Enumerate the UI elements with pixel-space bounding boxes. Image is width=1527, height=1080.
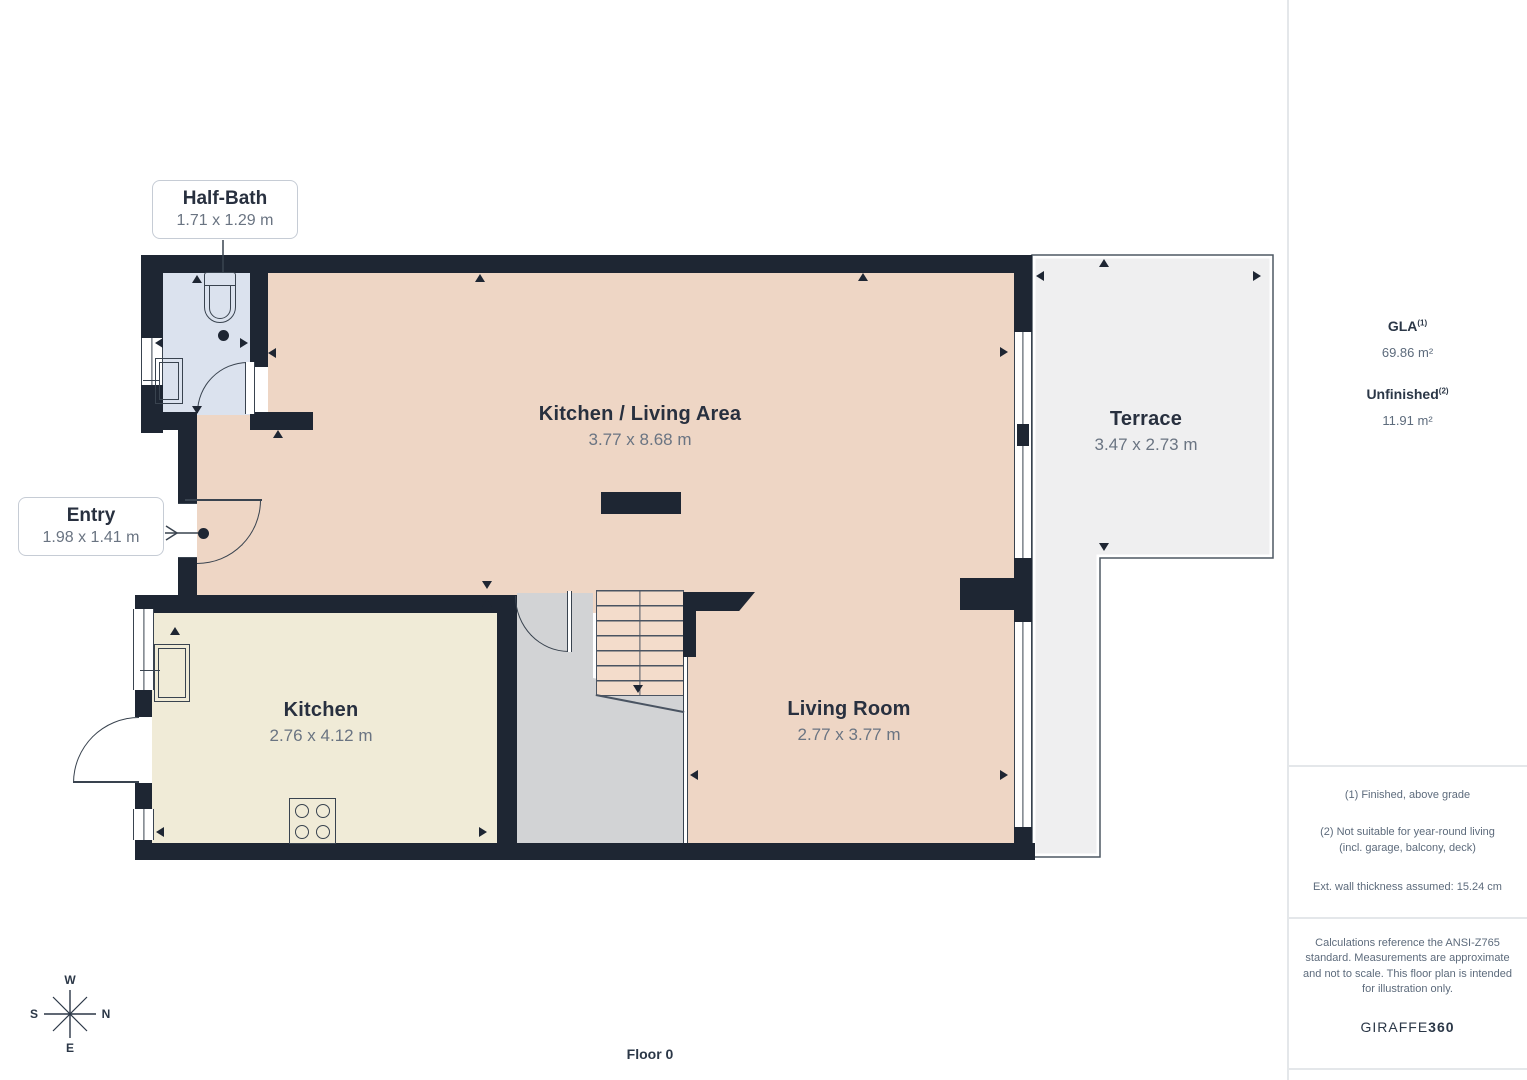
door-opening [178, 503, 197, 558]
measure-arrow [240, 338, 248, 348]
stairs-down-arrow-icon [633, 685, 643, 693]
room-name: Half-Bath [163, 188, 287, 210]
room-name: Kitchen [196, 699, 446, 722]
compass-e: E [66, 1041, 74, 1055]
measure-arrow [192, 406, 202, 414]
wall-segment [141, 412, 197, 430]
floorplan-page: Kitchen / Living Area 3.77 x 8.68 m Terr… [0, 0, 1527, 1080]
room-dims: 1.98 x 1.41 m [29, 529, 153, 547]
camera-point [218, 330, 229, 341]
room-name: Kitchen / Living Area [440, 403, 840, 426]
compass-icon: W N S E [28, 972, 112, 1056]
room-label-kitchen: Kitchen 2.76 x 4.12 m [196, 699, 446, 746]
wall-segment [683, 592, 696, 657]
wall-segment [135, 783, 152, 809]
wall-segment [1014, 255, 1032, 332]
stair-rail [683, 657, 688, 843]
floor-label: Floor 0 [560, 1046, 740, 1062]
measure-arrow [1099, 543, 1109, 551]
room-label-kitchen-living: Kitchen / Living Area 3.77 x 8.68 m [440, 403, 840, 450]
wall-segment [1014, 827, 1032, 860]
wall-segment [497, 595, 517, 843]
room-name: Entry [29, 505, 153, 527]
compass-s: S [30, 1007, 38, 1021]
wall-segment [601, 492, 681, 514]
room-dims: 3.47 x 2.73 m [1046, 435, 1246, 455]
measure-arrow [858, 273, 868, 281]
measure-arrow [156, 827, 164, 837]
callout-entry: Entry 1.98 x 1.41 m [18, 497, 164, 556]
sink-icon [143, 380, 160, 381]
measure-arrow [482, 581, 492, 589]
measure-arrow [1000, 347, 1008, 357]
stove-burner-icon [295, 825, 309, 839]
stove-burner-icon [316, 804, 330, 818]
wall-segment [178, 430, 197, 503]
measure-arrow [268, 348, 276, 358]
window [1014, 622, 1032, 827]
measure-arrow [273, 430, 283, 438]
measure-arrow [1099, 259, 1109, 267]
wall-segment [250, 412, 313, 430]
measure-arrow [192, 275, 202, 283]
stove-burner-icon [295, 804, 309, 818]
measure-arrow [1000, 770, 1008, 780]
wall-segment [1014, 558, 1032, 622]
measure-arrow [479, 827, 487, 837]
camera-point [198, 528, 209, 539]
wall-segment [145, 255, 1032, 273]
wall-segment [250, 267, 268, 367]
room-label-living-room: Living Room 2.77 x 3.77 m [724, 698, 974, 745]
measure-arrow [482, 599, 492, 607]
measure-arrow [1253, 271, 1261, 281]
cabinet-icon [140, 670, 160, 671]
callout-half-bath: Half-Bath 1.71 x 1.29 m [152, 180, 298, 239]
room-dims: 2.76 x 4.12 m [196, 726, 446, 746]
room-name: Terrace [1046, 408, 1246, 431]
door-leaf [73, 781, 139, 783]
wall-segment [141, 255, 163, 338]
compass-n: N [102, 1007, 111, 1021]
door-leaf [567, 591, 572, 652]
room-name: Living Room [724, 698, 974, 721]
window [133, 609, 154, 690]
stove-icon [289, 798, 336, 844]
stairs-icon [596, 590, 684, 696]
toilet-icon [209, 285, 231, 319]
wall-segment [1017, 424, 1029, 446]
room-label-terrace: Terrace 3.47 x 2.73 m [1046, 408, 1246, 455]
room-dims: 3.77 x 8.68 m [440, 430, 840, 450]
stove-burner-icon [316, 825, 330, 839]
measure-arrow [475, 274, 485, 282]
door-leaf [245, 362, 255, 414]
compass-w: W [64, 973, 76, 987]
door-leaf [185, 499, 262, 501]
wall-segment [135, 843, 1035, 860]
window [133, 809, 154, 840]
wall-segment [135, 690, 152, 717]
measure-arrow [170, 627, 180, 635]
room-dims: 1.71 x 1.29 m [163, 212, 287, 230]
room-dims: 2.77 x 3.77 m [724, 725, 974, 745]
sink-icon [159, 362, 179, 400]
measure-arrow [155, 338, 163, 348]
measure-arrow [1036, 271, 1044, 281]
cabinet-icon [158, 648, 186, 698]
wall-segment [135, 595, 505, 613]
measure-arrow [690, 770, 698, 780]
